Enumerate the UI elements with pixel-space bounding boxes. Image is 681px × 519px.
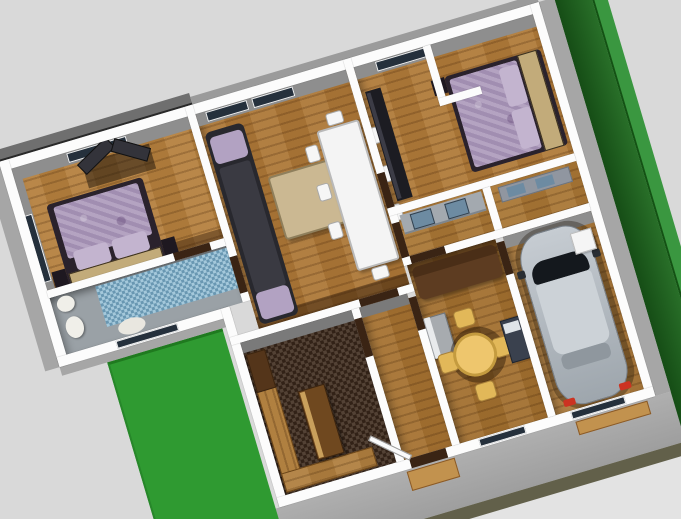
- floor-plan-scene: [0, 0, 681, 519]
